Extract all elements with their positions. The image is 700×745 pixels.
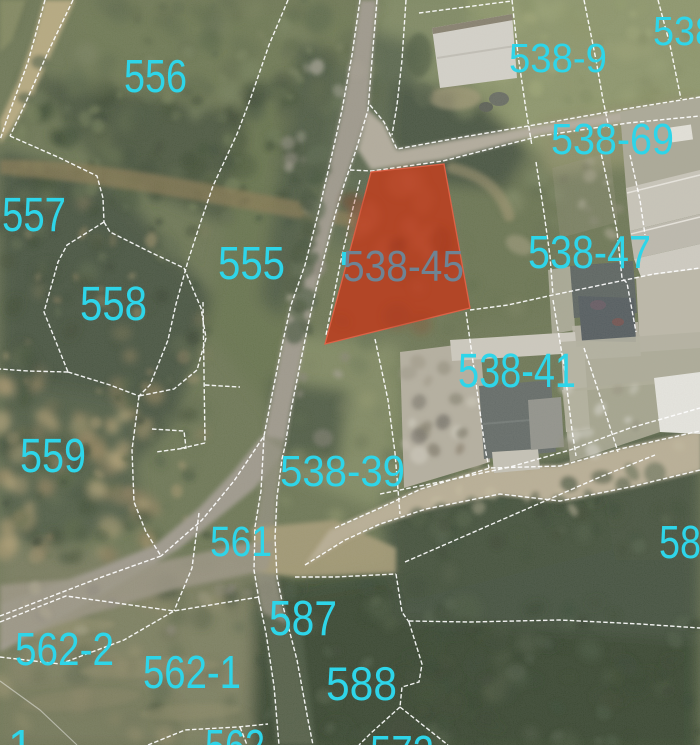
svg-text:58: 58 bbox=[659, 516, 700, 568]
svg-text:588: 588 bbox=[326, 657, 397, 710]
svg-text:557: 557 bbox=[2, 189, 66, 242]
svg-text:538-45: 538-45 bbox=[343, 242, 464, 291]
svg-text:587: 587 bbox=[269, 592, 337, 646]
svg-text:538-39: 538-39 bbox=[280, 447, 405, 496]
svg-text:572: 572 bbox=[370, 726, 434, 745]
svg-text:1: 1 bbox=[8, 720, 34, 745]
svg-text:538-47: 538-47 bbox=[528, 226, 651, 278]
svg-text:538-9: 538-9 bbox=[509, 35, 607, 81]
svg-text:562: 562 bbox=[205, 720, 265, 745]
svg-text:562-1: 562-1 bbox=[143, 646, 241, 698]
svg-text:555: 555 bbox=[218, 237, 285, 289]
svg-text:538-41: 538-41 bbox=[458, 345, 576, 398]
svg-text:561: 561 bbox=[210, 518, 272, 566]
svg-text:559: 559 bbox=[20, 430, 86, 483]
svg-text:538: 538 bbox=[653, 8, 700, 54]
svg-text:562-2: 562-2 bbox=[15, 623, 114, 675]
svg-text:556: 556 bbox=[124, 50, 187, 102]
svg-text:558: 558 bbox=[80, 278, 147, 331]
svg-text:538-69: 538-69 bbox=[551, 115, 674, 164]
